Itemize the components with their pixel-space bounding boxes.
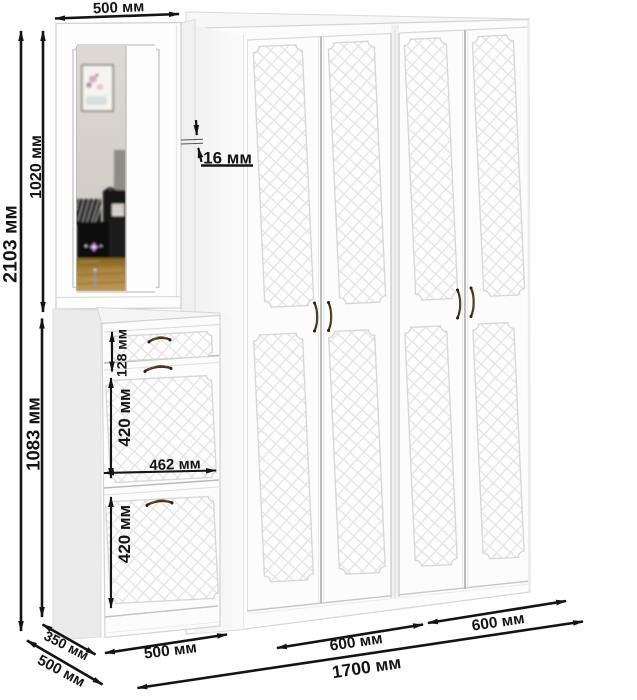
svg-text:1083 мм: 1083 мм xyxy=(22,397,43,471)
svg-text:420 мм: 420 мм xyxy=(115,505,134,563)
svg-text:462 мм: 462 мм xyxy=(149,455,201,474)
svg-text:2103 мм: 2103 мм xyxy=(0,205,22,283)
svg-text:500 мм: 500 мм xyxy=(92,0,144,17)
svg-text:1020 мм: 1020 мм xyxy=(28,135,45,199)
svg-text:420 мм: 420 мм xyxy=(115,388,134,446)
svg-text:128 мм: 128 мм xyxy=(113,329,129,377)
svg-text:16 мм: 16 мм xyxy=(203,148,252,167)
